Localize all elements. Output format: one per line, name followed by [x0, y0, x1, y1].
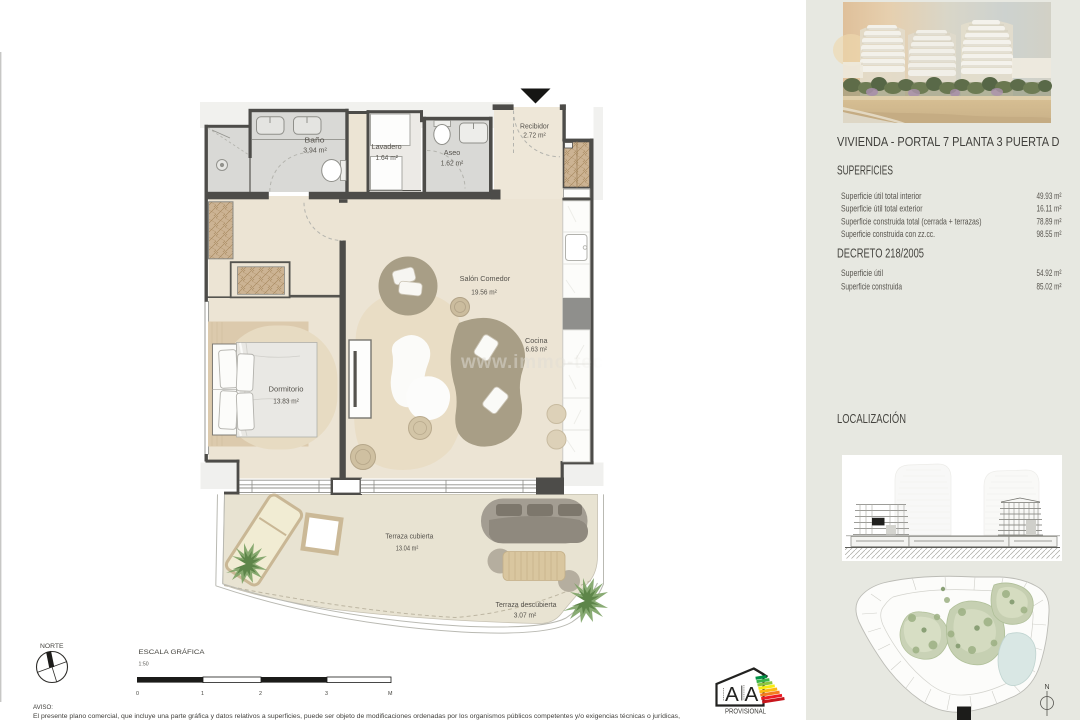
svg-text:78.89 m²: 78.89 m²	[1037, 216, 1062, 226]
svg-text:1.64 m²: 1.64 m²	[375, 155, 398, 162]
svg-text:85.02 m²: 85.02 m²	[1037, 282, 1062, 292]
svg-text:2.72 m²: 2.72 m²	[523, 132, 546, 139]
svg-text:1: 1	[201, 691, 204, 697]
svg-text:M: M	[388, 691, 393, 697]
svg-text:Cocina: Cocina	[525, 338, 548, 345]
svg-text:Recibidor: Recibidor	[520, 123, 550, 130]
svg-text:Terraza descubierta: Terraza descubierta	[496, 602, 557, 609]
svg-text:13.04 m²: 13.04 m²	[396, 546, 419, 553]
svg-text:Dormitorio: Dormitorio	[269, 387, 304, 394]
svg-text:0: 0	[136, 691, 139, 697]
svg-text:NORTE: NORTE	[40, 643, 64, 650]
svg-text:www.immo-tec: www.immo-tec	[460, 352, 604, 373]
svg-text:PROVISIONAL: PROVISIONAL	[725, 709, 766, 716]
svg-text:Superficie construida total (c: Superficie construida total (cerrada + t…	[841, 216, 982, 226]
svg-text:A: A	[745, 683, 759, 706]
svg-text:N: N	[1044, 684, 1049, 691]
svg-text:98.55 m²: 98.55 m²	[1037, 229, 1062, 239]
svg-text:DECRETO 218/2005: DECRETO 218/2005	[837, 246, 924, 261]
svg-text:Lavadero: Lavadero	[372, 144, 402, 151]
svg-text:Superficie útil: Superficie útil	[841, 268, 883, 278]
svg-text:1.62 m²: 1.62 m²	[441, 161, 464, 168]
svg-text:3.94 m²: 3.94 m²	[303, 148, 327, 155]
svg-text:16.11 m²: 16.11 m²	[1037, 204, 1062, 214]
svg-text:1:50: 1:50	[139, 662, 149, 668]
svg-text:54.92 m²: 54.92 m²	[1037, 268, 1062, 278]
svg-text:Superficie construida con zz.c: Superficie construida con zz.cc.	[841, 229, 935, 239]
svg-text:19.56 m²: 19.56 m²	[471, 290, 497, 297]
svg-text:AVISO:: AVISO:	[33, 704, 53, 711]
svg-text:VIVIENDA - PORTAL 7 PLANTA 3: VIVIENDA - PORTAL 7 PLANTA 3 PUERTA D	[837, 135, 1060, 149]
svg-text:Baño: Baño	[305, 138, 325, 145]
svg-text:Superficie construida: Superficie construida	[841, 282, 903, 292]
svg-text:ESCALA GRÁFICA: ESCALA GRÁFICA	[139, 647, 206, 656]
svg-text:Salón Comedor: Salón Comedor	[460, 276, 511, 283]
svg-text:49.93 m²: 49.93 m²	[1037, 191, 1062, 201]
svg-text:2: 2	[259, 691, 262, 697]
svg-text:3.07 m²: 3.07 m²	[514, 613, 537, 620]
svg-text:LOCALIZACIÓN: LOCALIZACIÓN	[837, 411, 906, 426]
svg-text:Aseo: Aseo	[444, 150, 461, 157]
svg-text:El presente plano comercial, q: El presente plano comercial, que incluye…	[33, 713, 680, 720]
svg-text:SUPERFICIES: SUPERFICIES	[837, 163, 893, 178]
svg-text:Superficie útil total exterior: Superficie útil total exterior	[841, 204, 923, 214]
svg-text:Superficie útil total interior: Superficie útil total interior	[841, 191, 922, 201]
svg-text:13.83 m²: 13.83 m²	[273, 399, 299, 406]
svg-text:Terraza cubierta: Terraza cubierta	[385, 534, 433, 541]
svg-text:3: 3	[325, 691, 328, 697]
svg-text:A: A	[725, 683, 739, 706]
